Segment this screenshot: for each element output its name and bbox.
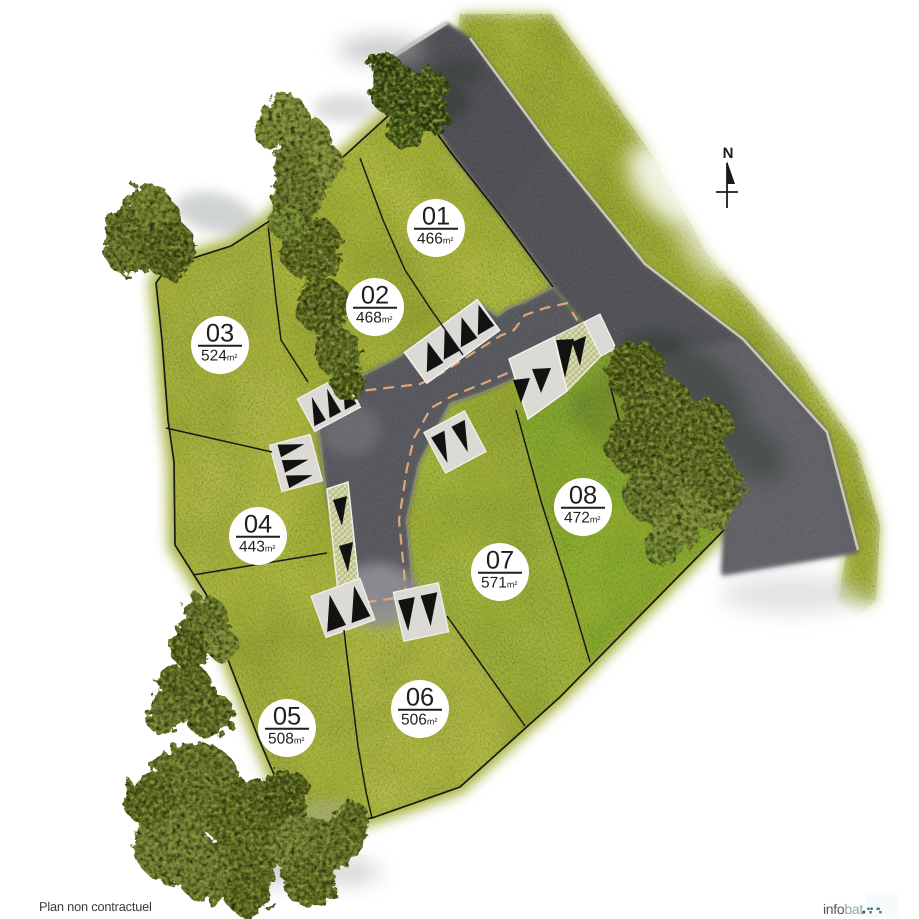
svg-text:04: 04 <box>244 511 272 539</box>
svg-text:06: 06 <box>406 684 434 712</box>
svg-text:Plan non contractuel: Plan non contractuel <box>39 899 152 914</box>
svg-text:01: 01 <box>422 203 450 231</box>
svg-text:03: 03 <box>206 320 234 348</box>
svg-text:infobat: infobat <box>823 901 863 917</box>
svg-text:08: 08 <box>569 482 597 510</box>
svg-text:05: 05 <box>273 703 301 731</box>
svg-text:02: 02 <box>361 282 389 310</box>
svg-text:N: N <box>723 145 734 162</box>
svg-text:07: 07 <box>486 547 514 575</box>
